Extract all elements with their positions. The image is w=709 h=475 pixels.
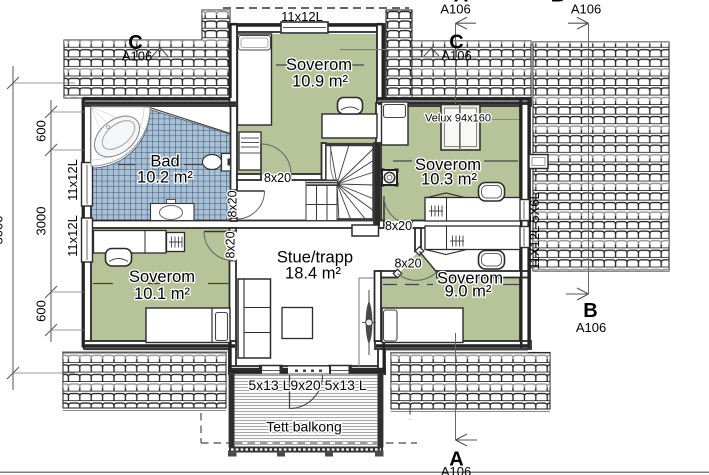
svg-text:8x20: 8x20 — [264, 171, 291, 185]
svg-text:9.0 m²: 9.0 m² — [445, 283, 492, 301]
svg-text:18.4 m²: 18.4 m² — [285, 265, 341, 283]
svg-text:A106: A106 — [441, 48, 471, 63]
svg-text:11x12L: 11x12L — [65, 215, 80, 257]
svg-text:5x13 L9x20 5x13 L: 5x13 L9x20 5x13 L — [248, 377, 367, 393]
svg-text:8x20: 8x20 — [226, 190, 240, 217]
svg-text:Soverom: Soverom — [129, 268, 195, 286]
svg-text:10.1 m²: 10.1 m² — [134, 285, 190, 303]
svg-text:Soverom: Soverom — [286, 56, 352, 74]
svg-text:11X12L 5X6L: 11X12L 5X6L — [527, 192, 542, 269]
svg-text:A106: A106 — [441, 464, 471, 475]
svg-text:A106: A106 — [122, 49, 152, 64]
svg-text:10.3 m²: 10.3 m² — [421, 171, 477, 189]
svg-text:3000: 3000 — [34, 207, 49, 236]
svg-text:Tett balkong: Tett balkong — [266, 419, 342, 435]
svg-text:B: B — [583, 300, 597, 322]
svg-text:10.9 m²: 10.9 m² — [292, 73, 348, 91]
svg-text:10.2 m²: 10.2 m² — [137, 169, 193, 187]
svg-text:8x20: 8x20 — [385, 219, 412, 233]
svg-text:A106: A106 — [576, 320, 606, 335]
svg-text:600: 600 — [34, 120, 49, 142]
svg-text:11x12L: 11x12L — [281, 9, 323, 24]
svg-text:A106: A106 — [440, 2, 470, 17]
svg-text:8x20: 8x20 — [224, 231, 238, 258]
svg-text:3000: 3000 — [0, 216, 6, 245]
svg-text:Velux 94x160: Velux 94x160 — [425, 113, 491, 125]
svg-text:600: 600 — [34, 300, 49, 322]
svg-text:A106: A106 — [571, 2, 601, 17]
svg-text:B: B — [551, 0, 565, 7]
svg-text:8x20: 8x20 — [394, 257, 421, 271]
svg-text:11x12L: 11x12L — [65, 159, 80, 201]
